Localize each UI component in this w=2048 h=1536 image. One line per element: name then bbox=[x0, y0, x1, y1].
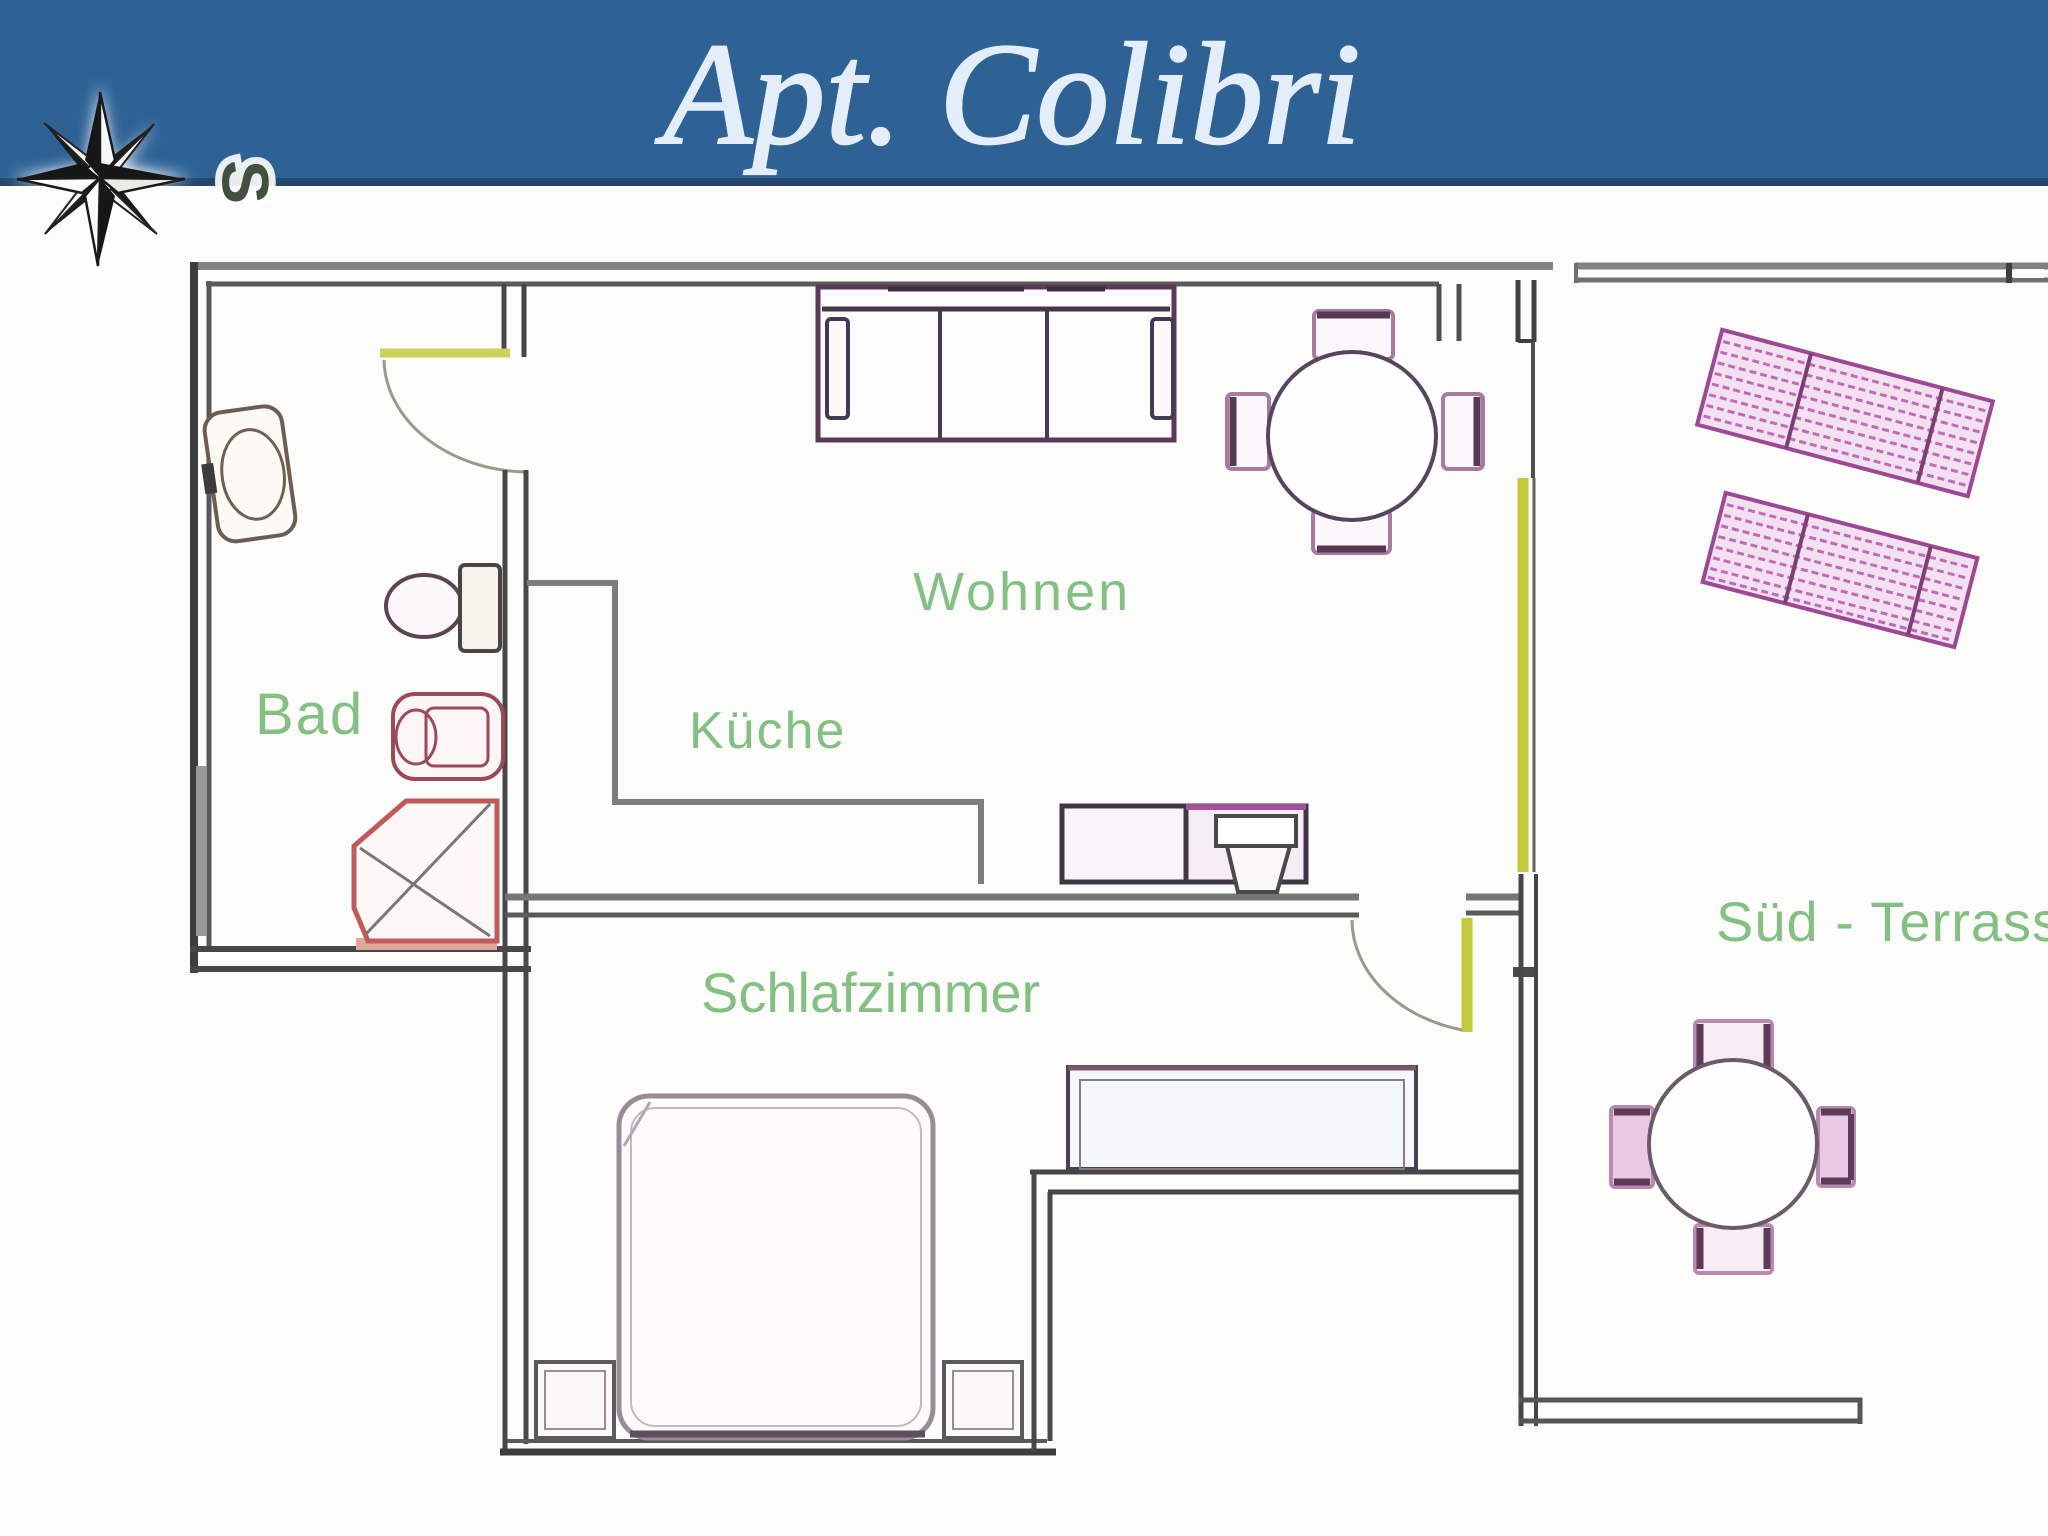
svg-text:Bad: Bad bbox=[255, 682, 364, 747]
svg-text:Süd - Terrasse: Süd - Terrasse bbox=[1716, 890, 2048, 953]
svg-text:Küche: Küche bbox=[689, 702, 846, 760]
svg-text:S: S bbox=[209, 160, 283, 204]
svg-text:Apt. Colibri: Apt. Colibri bbox=[655, 13, 1361, 175]
svg-text:Wohnen: Wohnen bbox=[913, 562, 1131, 622]
svg-text:Schlafzimmer: Schlafzimmer bbox=[701, 961, 1040, 1024]
